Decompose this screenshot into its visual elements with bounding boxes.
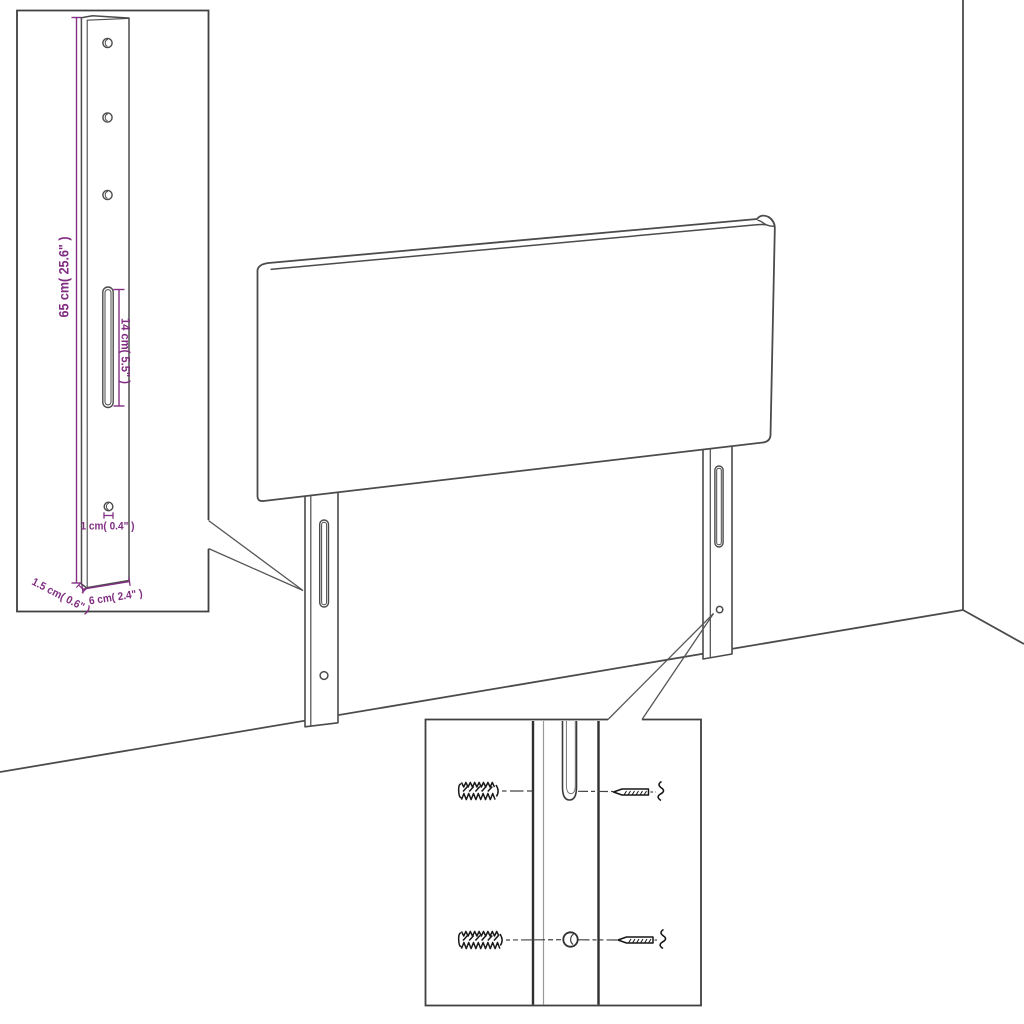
svg-text:14 cm( 5.5" ): 14 cm( 5.5" ): [118, 318, 132, 384]
svg-text:65 cm( 25.6" ): 65 cm( 25.6" ): [56, 237, 72, 318]
svg-text:1 cm( 0.4" ): 1 cm( 0.4" ): [81, 521, 135, 533]
